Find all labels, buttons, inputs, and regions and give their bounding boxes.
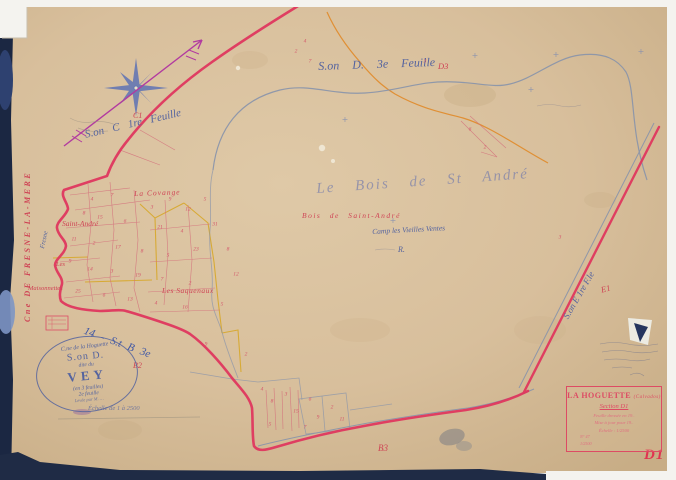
cadastral-map-scan: Cne DE FRESNE-LA-MERE Fresne S.on C 1re … [0,0,676,480]
map-canvas [0,0,676,480]
paper-sheet [2,6,668,473]
